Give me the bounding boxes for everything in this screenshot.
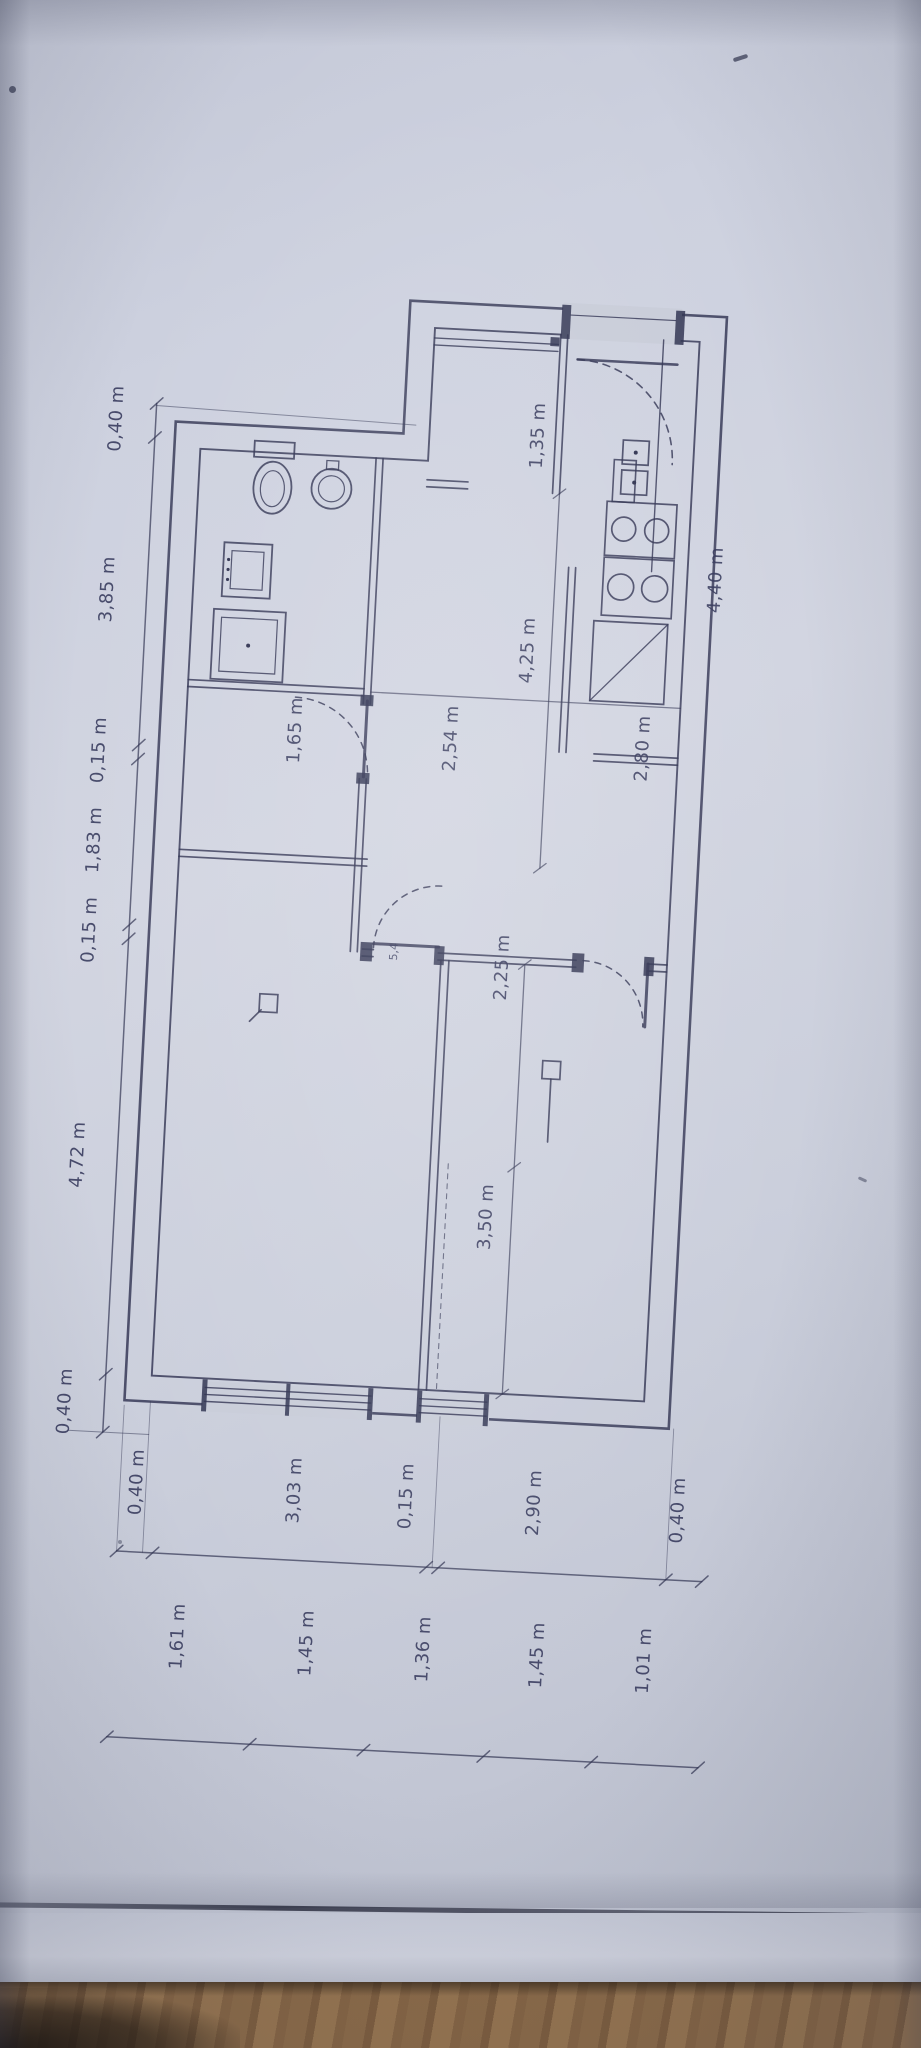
dim-vestibule: 1,35 m	[526, 402, 550, 469]
dim-left-4: 0,15 m	[77, 896, 101, 963]
dim-bouter-4: 1,01 m	[632, 1627, 656, 1694]
sink	[310, 468, 352, 510]
paper-bottom-edge	[0, 1913, 921, 1985]
photo-edge-shadow-top	[0, 0, 921, 46]
dim-kitchen: 2,80 m	[631, 715, 655, 782]
wood-table-dark-corner	[0, 1988, 240, 2048]
dim-binner-0: 0,40 m	[124, 1448, 148, 1515]
bathroom-fixtures	[210, 439, 353, 686]
toilet-tank	[254, 441, 295, 459]
interior-walls	[152, 316, 700, 1401]
dim-binner-1: 3,03 m	[282, 1457, 306, 1524]
photo-edge-shadow-left	[0, 0, 30, 2048]
dim-bath-door: 1,65 m	[283, 697, 307, 764]
dimension-chain-bottom-outer	[101, 1730, 705, 1774]
dim-room-length: 3,50 m	[474, 1183, 498, 1250]
dim-left-6: 0,40 m	[53, 1367, 77, 1434]
dim-bouter-2: 1,36 m	[411, 1615, 435, 1682]
dim-left-0: 0,40 m	[104, 385, 128, 452]
dim-bouter-3: 1,45 m	[525, 1621, 549, 1688]
dim-left-1: 3,85 m	[95, 556, 119, 623]
dim-hall-length: 4,25 m	[516, 617, 540, 684]
dim-bouter-1: 1,45 m	[294, 1609, 318, 1676]
dim-binner-3: 2,90 m	[522, 1469, 546, 1536]
dim-room-width: 2,25 m	[490, 934, 514, 1001]
dim-bouter-0: 1,61 m	[165, 1603, 189, 1670]
floorplan-drawing: 0,40 m 3,85 m 0,15 m 1,83 m 0,15 m 4,72 …	[0, 0, 921, 2048]
entrance-opening	[562, 303, 683, 345]
floorplan-photo: 0,40 m 3,85 m 0,15 m 1,83 m 0,15 m 4,72 …	[0, 0, 921, 2048]
dim-wing-depth: 4,40 m	[703, 546, 727, 613]
photo-edge-shadow-right	[893, 0, 921, 2048]
kitchen-sink	[604, 501, 677, 559]
dim-hall-width: 2,54 m	[439, 705, 463, 772]
dim-left-2: 0,15 m	[87, 716, 111, 783]
dim-left-3: 1,83 m	[82, 806, 106, 873]
paper-fold-shadow	[0, 1872, 921, 1908]
dim-left-5: 4,72 m	[66, 1121, 90, 1188]
dim-binner-2: 0,15 m	[394, 1462, 418, 1529]
radiator-symbols	[244, 993, 564, 1142]
dim-door-scribble: 5,4	[387, 943, 401, 961]
dimension-chain-left	[67, 396, 416, 1452]
photo-speck	[118, 1540, 122, 1544]
dimension-labels: 0,40 m 3,85 m 0,15 m 1,83 m 0,15 m 4,72 …	[41, 380, 746, 1696]
dim-binner-4: 0,40 m	[666, 1477, 690, 1544]
kitchen-hob	[601, 557, 674, 619]
